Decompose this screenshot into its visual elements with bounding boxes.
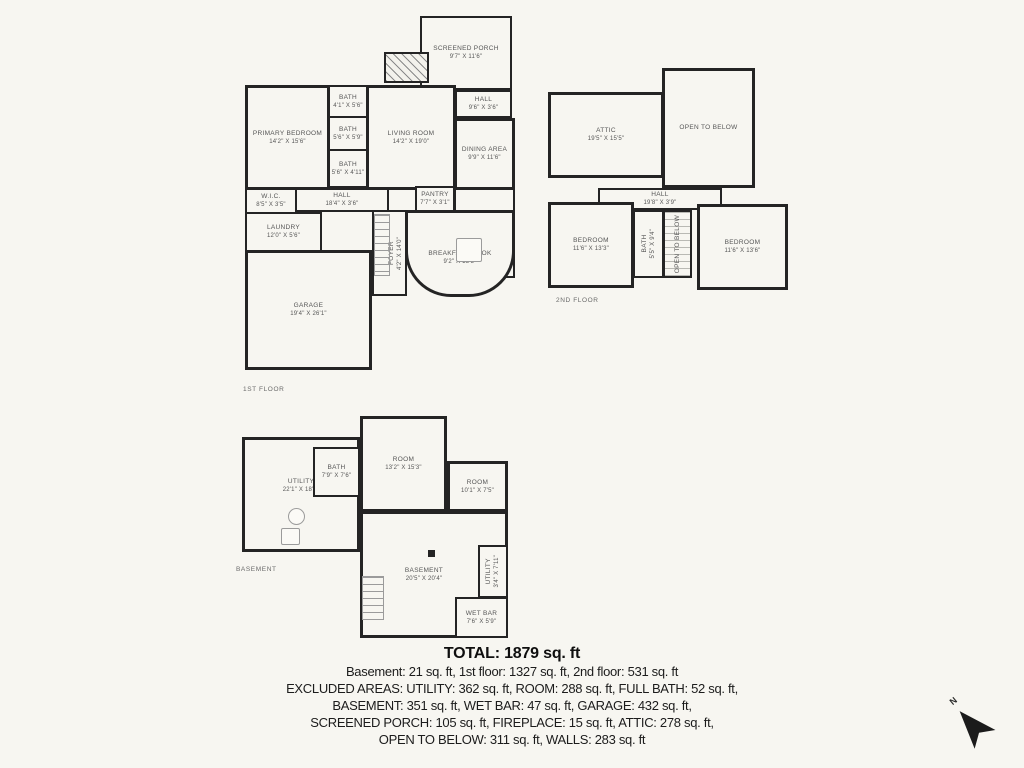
fireplace-icon — [384, 52, 429, 83]
room-bath-basement: BATH 7'9" X 7'6" — [313, 447, 360, 497]
room-label: ROOM 13'2" X 15'3" — [385, 456, 422, 472]
room-name: BATH — [640, 229, 649, 258]
room-name: BATH — [332, 161, 365, 169]
room-label: BATH 4'1" X 5'6" — [333, 94, 362, 110]
room-laundry: LAUNDRY 12'0" X 5'6" — [245, 212, 322, 252]
room-bath-2nd: BATH 5'5" X 9'4" — [633, 210, 664, 278]
room-name: PANTRY — [420, 191, 449, 199]
room-dims: 12'0" X 5'6" — [267, 232, 300, 240]
room-label: BATH 5'6" X 4'11" — [332, 161, 365, 177]
floor-plan-sheet: SCREENED PORCH 9'7" X 11'6" HALL 9'6" X … — [0, 0, 1024, 768]
summary-line: OPEN TO BELOW: 311 sq. ft, WALLS: 283 sq… — [0, 731, 1024, 748]
room-label: BEDROOM 11'6" X 13'3" — [573, 237, 609, 253]
room-name: BASEMENT — [405, 567, 443, 575]
room-label: HALL 19'8" X 3'9" — [644, 191, 677, 207]
room-label: UTILITY 3'4" X 7'11" — [484, 555, 502, 588]
room-dims: 7'7" X 3'1" — [420, 199, 449, 207]
room-dims: 5'5" X 9'4" — [649, 229, 658, 258]
room-bath-3: BATH 5'6" X 4'11" — [328, 149, 368, 188]
room-dims: 18'4" X 3'6" — [326, 200, 359, 208]
room-wic: W.I.C. 8'5" X 3'5" — [245, 188, 297, 214]
room-name: ROOM — [385, 456, 422, 464]
room-dims: 7'9" X 7'6" — [322, 472, 351, 480]
room-label: BASEMENT 20'5" X 20'4" — [405, 567, 443, 583]
room-name: OPEN TO BELOW — [673, 215, 682, 273]
room-name: BATH — [333, 94, 362, 102]
floor-caption-basement: BASEMENT — [236, 566, 277, 573]
room-name: LIVING ROOM — [388, 130, 435, 138]
north-arrow: N — [942, 694, 1004, 756]
room-bath-1: BATH 4'1" X 5'6" — [328, 85, 368, 118]
room-label: PANTRY 7'7" X 3'1" — [420, 191, 449, 207]
room-label: BATH 7'9" X 7'6" — [322, 464, 351, 480]
room-label: WET BAR 7'6" X 5'9" — [466, 610, 498, 626]
room-bedroom-right: BEDROOM 11'6" X 13'6" — [697, 204, 788, 290]
room-name: BEDROOM — [724, 239, 760, 247]
room-dims: 19'5" X 15'5" — [588, 135, 625, 143]
room-dims: 8'5" X 3'5" — [256, 201, 285, 209]
room-label: HALL 9'6" X 3'6" — [469, 96, 498, 112]
room-dims: 10'1" X 7'5" — [461, 487, 494, 495]
room-name: ATTIC — [588, 127, 625, 135]
room-dims: 9'7" X 11'6" — [433, 53, 499, 61]
room-name: W.I.C. — [256, 193, 285, 201]
room-dims: 9'6" X 3'6" — [469, 104, 498, 112]
room-name: DINING AREA — [462, 146, 507, 154]
room-name: HALL — [326, 192, 359, 200]
room-label: ATTIC 19'5" X 15'5" — [588, 127, 625, 143]
total-area-text: TOTAL: 1879 sq. ft — [0, 644, 1024, 663]
summary-line: Basement: 21 sq. ft, 1st floor: 1327 sq.… — [0, 663, 1024, 680]
room-dining-area: DINING AREA 9'9" X 11'6" — [454, 118, 515, 190]
room-wet-bar: WET BAR 7'6" X 5'9" — [455, 597, 508, 638]
room-dims: 5'6" X 5'9" — [333, 134, 362, 142]
room-label: BATH 5'5" X 9'4" — [640, 229, 658, 258]
room-name: UTILITY — [484, 555, 493, 588]
room-bath-2: BATH 5'6" X 5'9" — [328, 116, 368, 151]
room-bedroom-left: BEDROOM 11'6" X 13'3" — [548, 202, 634, 288]
staircase-icon — [374, 214, 390, 276]
equipment-icon — [281, 528, 300, 545]
room-dims: 5'6" X 4'11" — [332, 169, 365, 177]
room-living-room: LIVING ROOM 14'2" X 19'0" — [366, 85, 456, 190]
room-name: LAUNDRY — [267, 224, 300, 232]
summary-line: EXCLUDED AREAS: UTILITY: 362 sq. ft, ROO… — [0, 680, 1024, 697]
room-label: DINING AREA 9'9" X 11'6" — [462, 146, 507, 162]
room-name: SCREENED PORCH — [433, 45, 499, 53]
room-label: ROOM 10'1" X 7'5" — [461, 479, 494, 495]
summary-line: BASEMENT: 351 sq. ft, WET BAR: 47 sq. ft… — [0, 697, 1024, 714]
room-open-to-below: OPEN TO BELOW — [662, 68, 755, 188]
room-dims: 14'2" X 15'6" — [253, 138, 322, 146]
room-label: OPEN TO BELOW — [679, 124, 737, 132]
room-dims: 14'2" X 19'0" — [388, 138, 435, 146]
room-name: OPEN TO BELOW — [679, 124, 737, 132]
room-dims: 11'6" X 13'6" — [724, 247, 760, 255]
room-basement-room-2: ROOM 10'1" X 7'5" — [447, 461, 508, 512]
kitchen-island-icon — [456, 238, 482, 262]
room-name: WET BAR — [466, 610, 498, 618]
hvac-unit-icon — [288, 508, 305, 525]
room-utility-closet: UTILITY 3'4" X 7'11" — [478, 545, 508, 598]
room-label: BEDROOM 11'6" X 13'6" — [724, 239, 760, 255]
floor-caption-1st: 1ST FLOOR — [243, 386, 284, 393]
room-name: BATH — [333, 126, 362, 134]
room-label: PRIMARY BEDROOM 14'2" X 15'6" — [253, 130, 322, 146]
room-name: BEDROOM — [573, 237, 609, 245]
room-dims: 7'6" X 5'9" — [466, 618, 498, 626]
room-dims: 4'1" X 5'6" — [333, 102, 362, 110]
room-dims: 9'9" X 11'6" — [462, 154, 507, 162]
room-attic: ATTIC 19'5" X 15'5" — [548, 92, 664, 178]
room-hall-main: HALL 18'4" X 3'6" — [295, 188, 389, 212]
room-dims: 11'6" X 13'3" — [573, 245, 609, 253]
room-name: GARAGE — [290, 302, 327, 310]
room-name: ROOM — [461, 479, 494, 487]
room-dims: 3'4" X 7'11" — [493, 555, 502, 588]
column-marker — [428, 550, 435, 557]
room-label: GARAGE 19'4" X 26'1" — [290, 302, 327, 318]
room-label: BATH 5'6" X 5'9" — [333, 126, 362, 142]
room-label: LIVING ROOM 14'2" X 19'0" — [388, 130, 435, 146]
room-name: PRIMARY BEDROOM — [253, 130, 322, 138]
room-stairwell-open-below: OPEN TO BELOW — [663, 210, 692, 278]
room-garage: GARAGE 19'4" X 26'1" — [245, 250, 372, 370]
room-dims: 13'2" X 15'3" — [385, 464, 422, 472]
room-pantry: PANTRY 7'7" X 3'1" — [415, 186, 455, 212]
room-primary-bedroom: PRIMARY BEDROOM 14'2" X 15'6" — [245, 85, 330, 190]
room-label: HALL 18'4" X 3'6" — [326, 192, 359, 208]
summary-line: SCREENED PORCH: 105 sq. ft, FIREPLACE: 1… — [0, 714, 1024, 731]
room-label: LAUNDRY 12'0" X 5'6" — [267, 224, 300, 240]
room-name: HALL — [469, 96, 498, 104]
room-name: BATH — [322, 464, 351, 472]
room-dims: 4'2" X 14'0" — [396, 237, 405, 270]
room-dims: 20'5" X 20'4" — [405, 575, 443, 583]
room-dims: 19'4" X 26'1" — [290, 310, 327, 318]
area-summary: TOTAL: 1879 sq. ft Basement: 21 sq. ft, … — [0, 644, 1024, 748]
room-name: HALL — [644, 191, 677, 199]
floor-caption-2nd: 2ND FLOOR — [556, 297, 599, 304]
room-hall-upper: HALL 9'6" X 3'6" — [455, 90, 512, 118]
room-label: OPEN TO BELOW — [673, 215, 682, 273]
staircase-icon — [362, 576, 384, 620]
room-label: SCREENED PORCH 9'7" X 11'6" — [433, 45, 499, 61]
room-dims: 19'8" X 3'9" — [644, 199, 677, 207]
room-basement-room-1: ROOM 13'2" X 15'3" — [360, 416, 447, 512]
room-label: W.I.C. 8'5" X 3'5" — [256, 193, 285, 209]
room-screened-porch: SCREENED PORCH 9'7" X 11'6" — [420, 16, 512, 90]
